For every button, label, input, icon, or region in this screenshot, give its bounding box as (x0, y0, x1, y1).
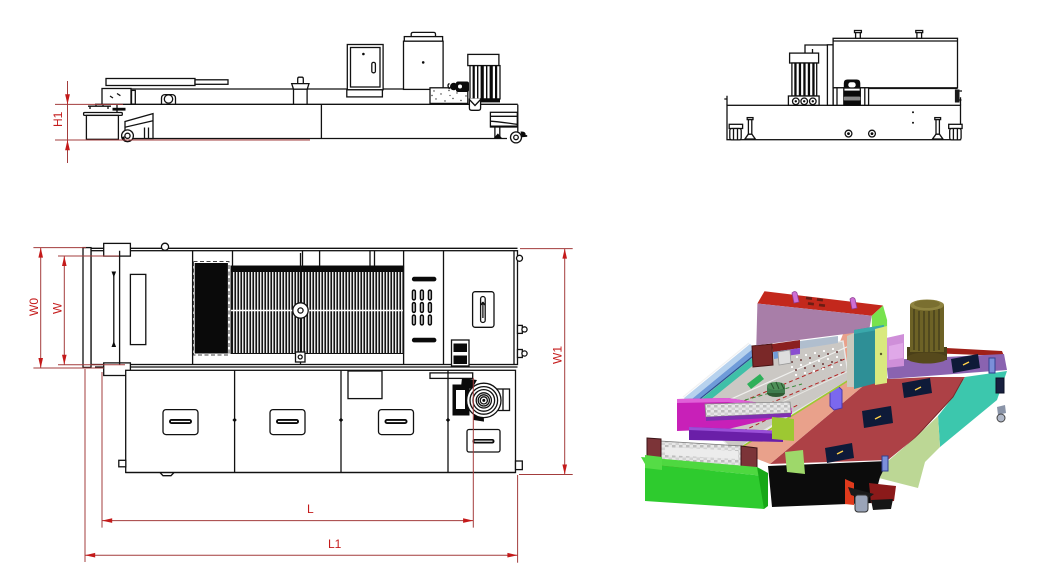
svg-text:W0: W0 (27, 298, 41, 316)
svg-text:L1: L1 (328, 537, 342, 551)
svg-text:L: L (307, 502, 314, 516)
svg-text:W1: W1 (551, 346, 565, 364)
svg-text:H1: H1 (51, 111, 65, 127)
svg-text:W: W (51, 302, 65, 314)
